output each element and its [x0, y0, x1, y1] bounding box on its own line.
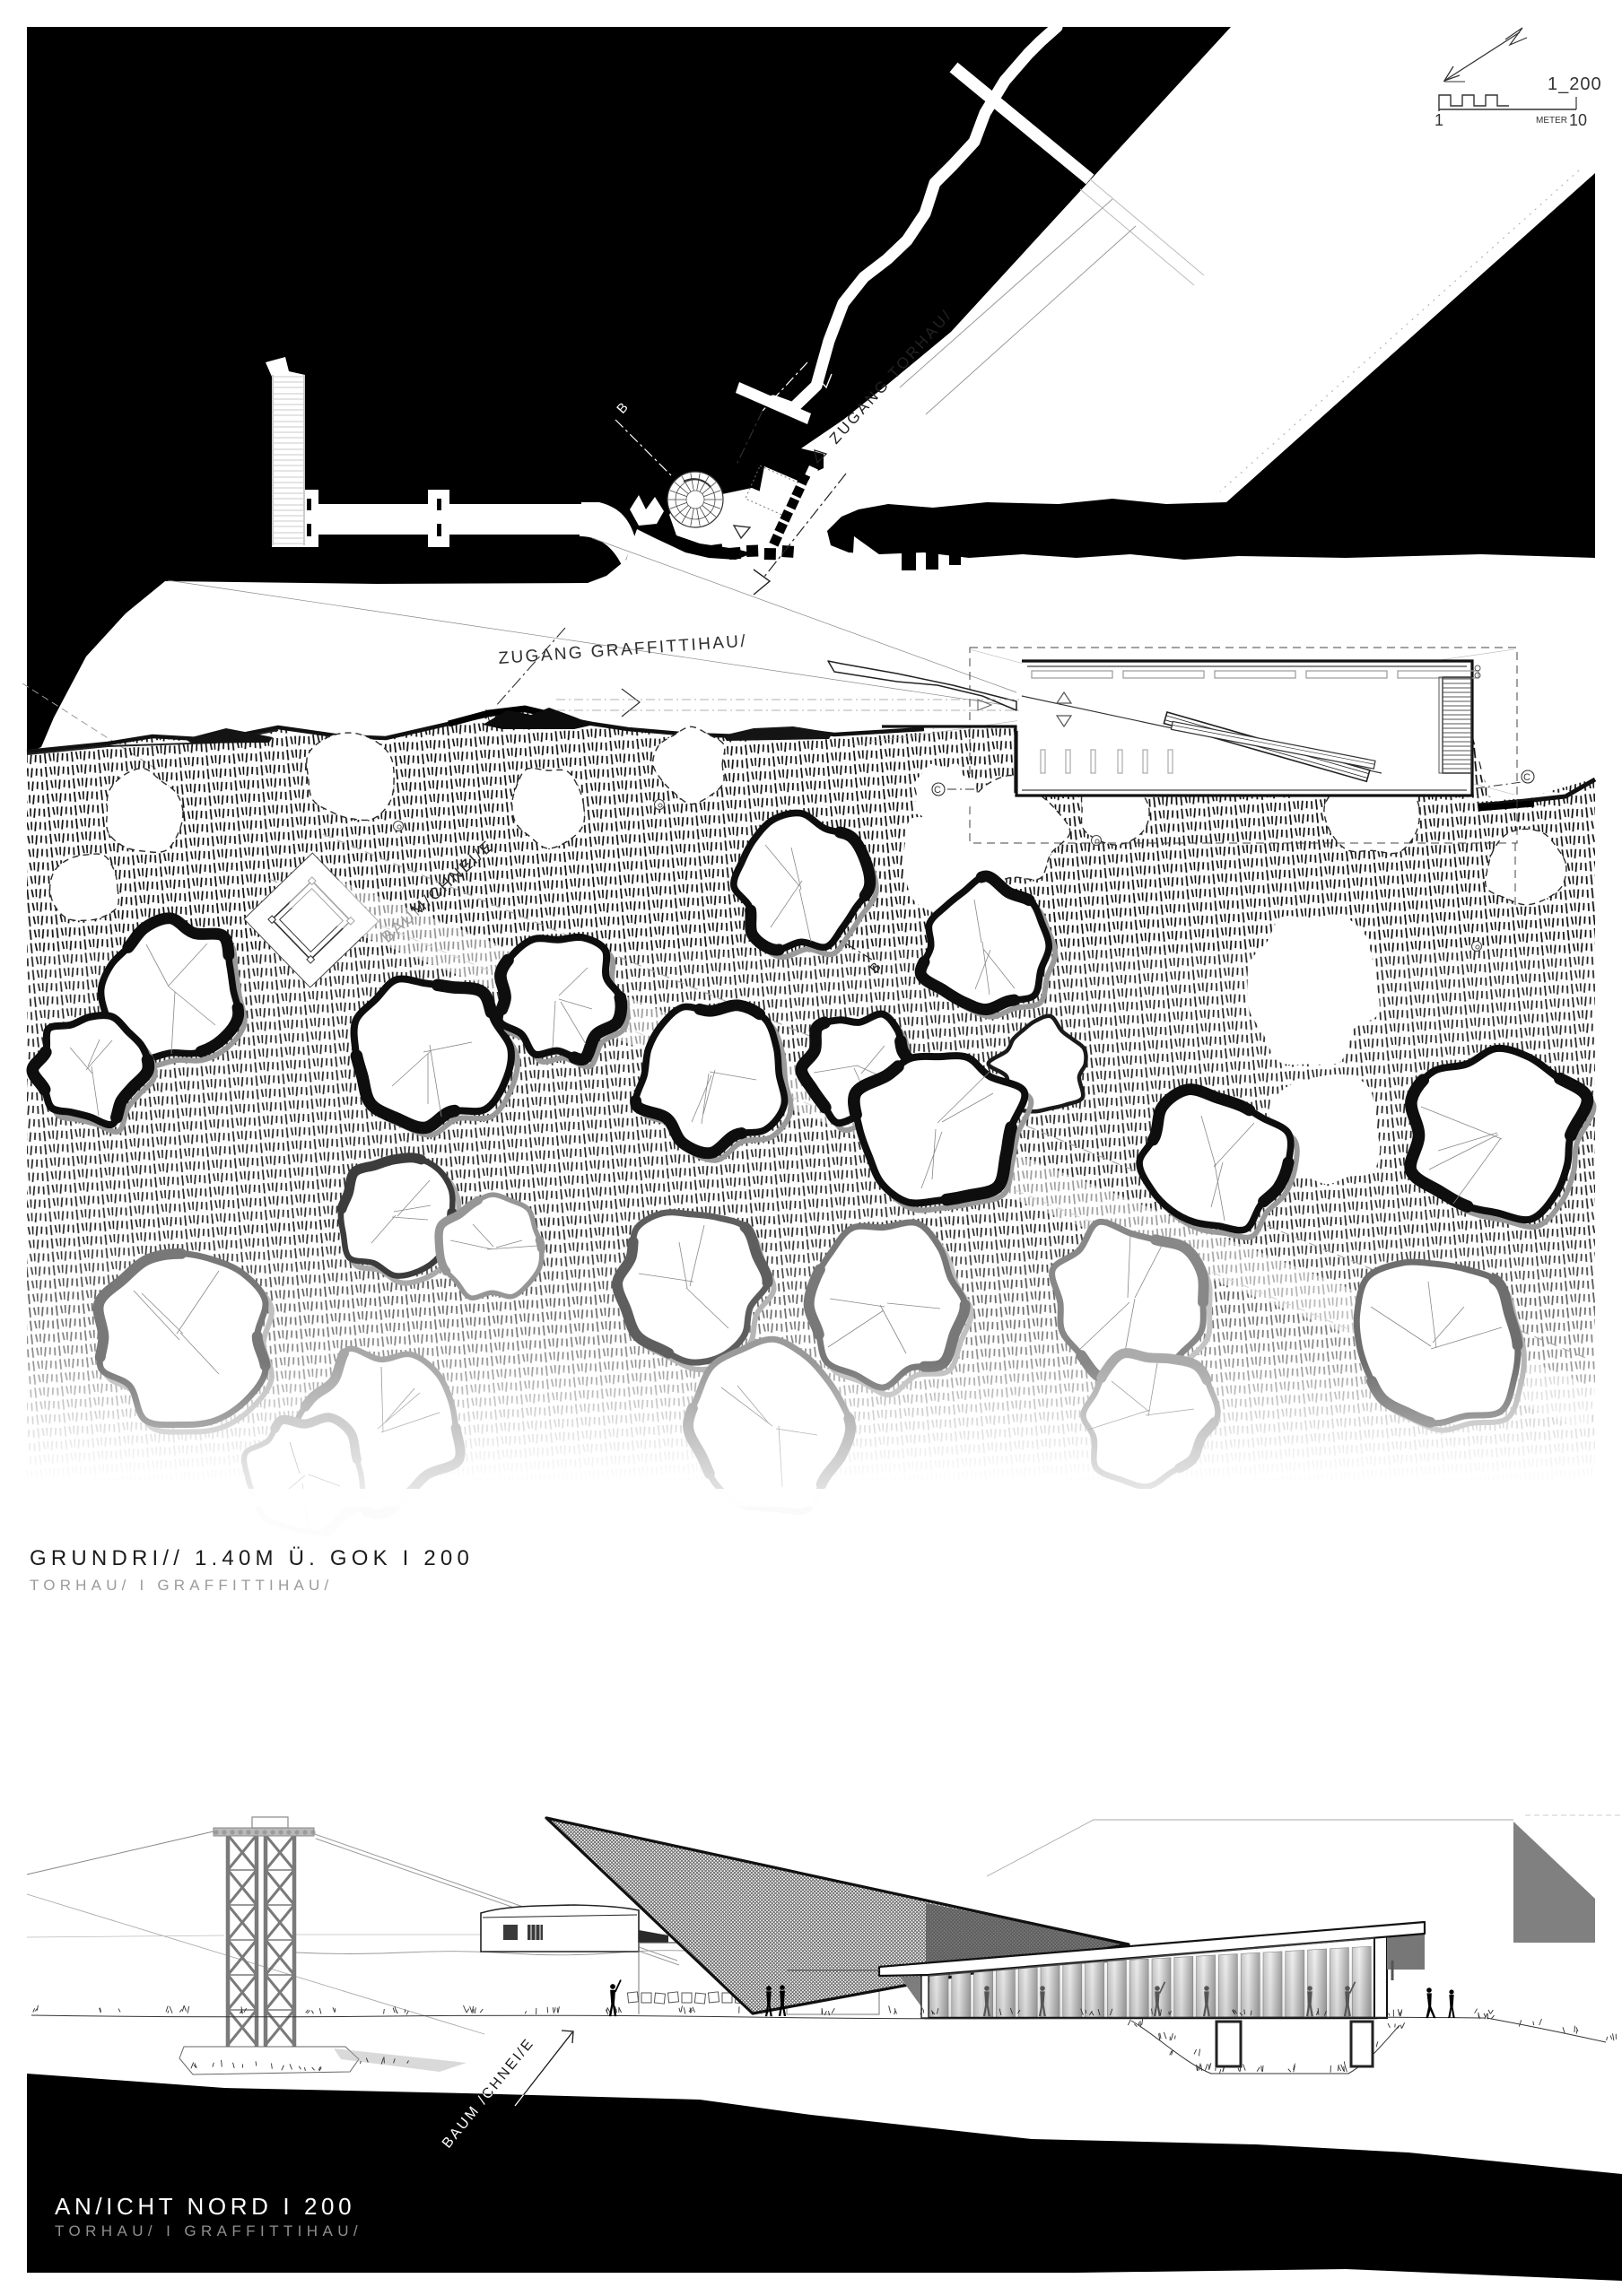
svg-text:10: 10 — [1569, 111, 1587, 129]
svg-text:C: C — [1523, 772, 1530, 783]
svg-text:TORHAU/ I GRAFFITTIHAU/: TORHAU/ I GRAFFITTIHAU/ — [30, 1577, 333, 1594]
svg-text:AN/ICHT NORD I 200: AN/ICHT NORD I 200 — [55, 2193, 355, 2220]
svg-text:C: C — [934, 785, 941, 796]
svg-text:METER: METER — [1536, 116, 1567, 126]
svg-text:1_200: 1_200 — [1548, 74, 1602, 94]
svg-text:TORHAU/ I GRAFFITTIHAU/: TORHAU/ I GRAFFITTIHAU/ — [55, 2222, 362, 2239]
svg-text:GRUNDRI// 1.40M Ü. GOK I: GRUNDRI// 1.40M Ü. GOK I 200 — [30, 1546, 474, 1570]
svg-text:1: 1 — [1435, 111, 1443, 129]
